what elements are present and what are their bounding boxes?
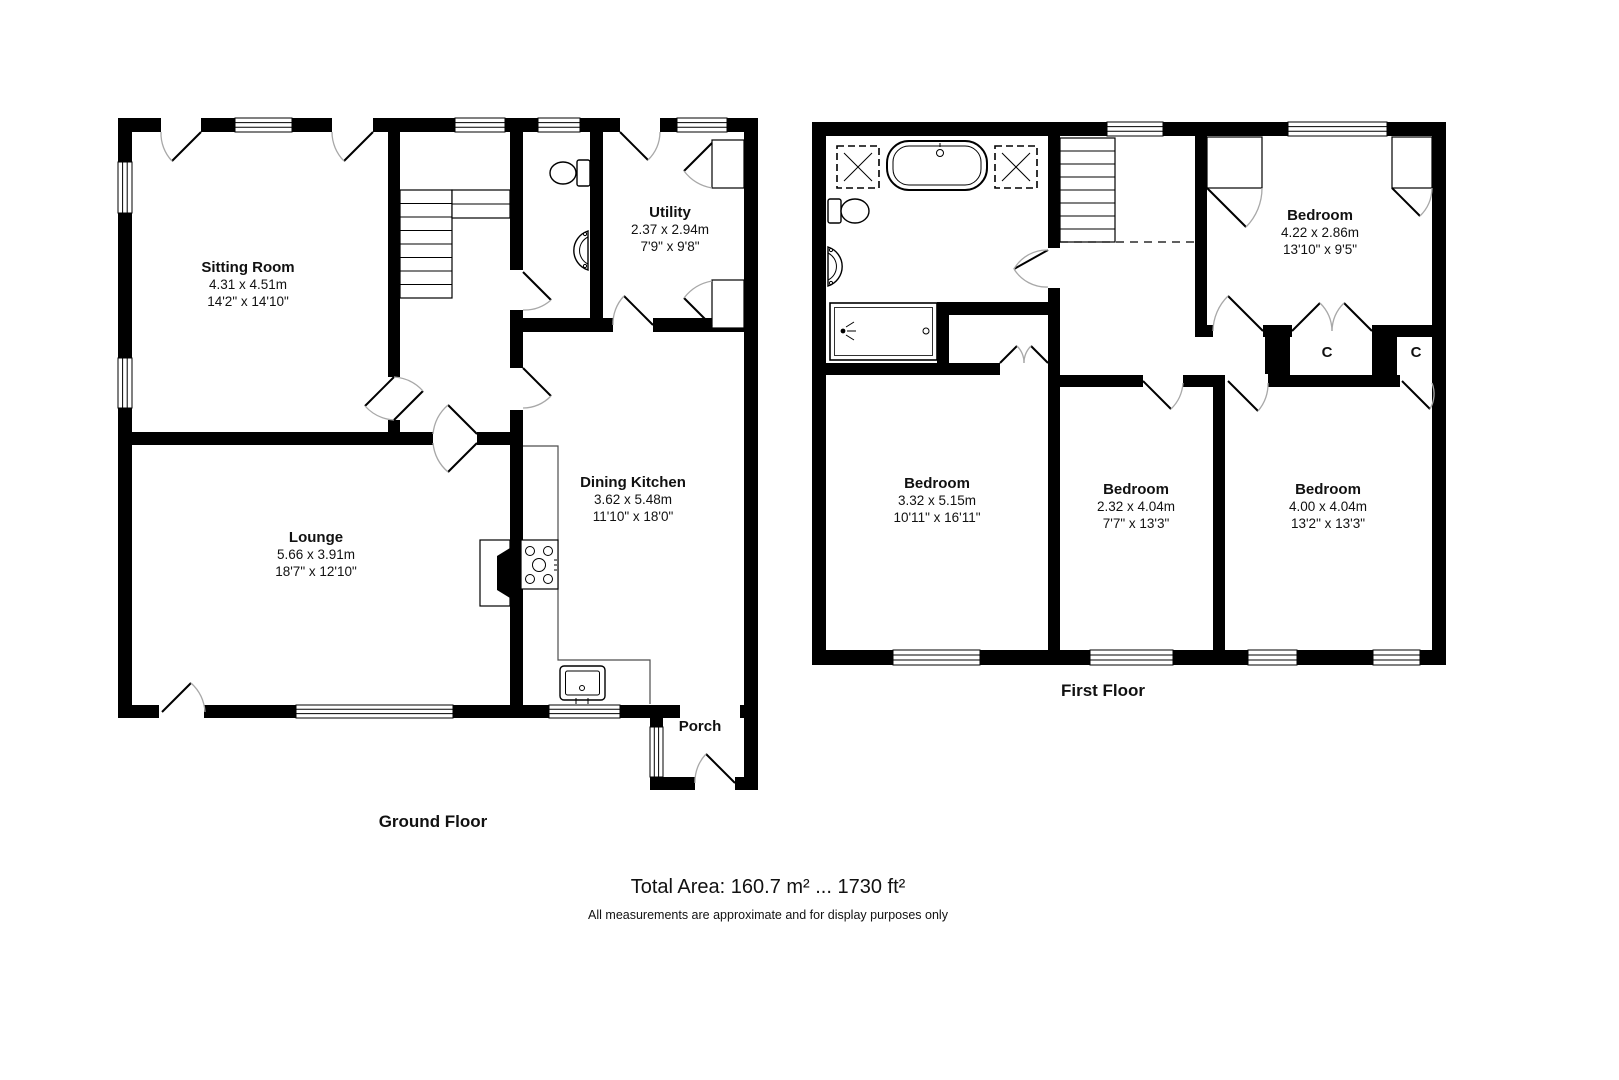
door-swing — [620, 132, 660, 160]
cupboard-icon — [684, 140, 744, 188]
bedroom-2-metric: 2.32 x 4.04m — [1097, 499, 1175, 514]
utility-imperial: 7'9" x 9'8" — [640, 239, 699, 254]
footer-text: Total Area: 160.7 m² ... 1730 ft² All me… — [588, 876, 949, 922]
utility-label: Utility — [649, 204, 691, 221]
shower-tray-icon — [837, 146, 879, 188]
window-icon — [1288, 122, 1387, 136]
window-icon — [1107, 122, 1163, 136]
ff-room-labels: Bedroom 4.22 x 2.86m 13'10" x 9'5" Bedro… — [893, 207, 1421, 700]
sink-icon — [828, 247, 842, 286]
bath-icon — [887, 141, 987, 190]
window-icon — [1373, 650, 1420, 665]
door-swing — [523, 272, 551, 310]
bedroom-tr-metric: 4.22 x 2.86m — [1281, 225, 1359, 240]
window-icon — [1090, 650, 1173, 665]
window-icon — [455, 118, 505, 132]
wardrobe-icon — [1207, 137, 1262, 227]
sitting-room-label: Sitting Room — [201, 259, 294, 276]
window-icon — [235, 118, 292, 132]
utility-metric: 2.37 x 2.94m — [631, 222, 709, 237]
window-icon — [118, 162, 132, 213]
window-icon — [650, 727, 663, 777]
ground-floor-plan: Sitting Room 4.31 x 4.51m 14'2" x 14'10"… — [118, 117, 758, 831]
door-swing — [1402, 381, 1434, 409]
window-icon — [118, 358, 132, 408]
bedroom-2-imperial: 7'7" x 13'3" — [1103, 516, 1170, 531]
gf-stairs-icon — [400, 190, 510, 298]
fireplace-icon — [480, 540, 510, 606]
ground-floor-title: Ground Floor — [379, 812, 488, 831]
bedroom-3-metric: 4.00 x 4.04m — [1289, 499, 1367, 514]
floorplan-page: Sitting Room 4.31 x 4.51m 14'2" x 14'10"… — [0, 0, 1619, 1080]
shower-enclosure-icon — [830, 303, 937, 360]
window-icon — [893, 650, 980, 665]
door-swing — [161, 132, 201, 161]
bedroom-1-label: Bedroom — [904, 475, 970, 492]
dining-kitchen-label: Dining Kitchen — [580, 474, 686, 491]
first-floor-plan: Bedroom 4.22 x 2.86m 13'10" x 9'5" Bedro… — [812, 122, 1446, 700]
sink-icon — [574, 231, 588, 270]
window-icon — [296, 705, 453, 718]
door-swing-double — [1000, 346, 1048, 363]
window-icon — [538, 118, 580, 132]
door-swing-double-action — [1014, 250, 1048, 287]
dining-kitchen-metric: 3.62 x 5.48m — [594, 492, 672, 507]
ff-stairs-icon — [1060, 138, 1195, 242]
dining-kitchen-imperial: 11'10" x 18'0" — [593, 509, 674, 524]
bedroom-tr-imperial: 13'10" x 9'5" — [1283, 242, 1357, 257]
hob-icon — [521, 540, 558, 589]
floorplan-svg: Sitting Room 4.31 x 4.51m 14'2" x 14'10"… — [0, 0, 1619, 1080]
ff-walls — [812, 122, 1446, 665]
shower-tray-icon — [995, 146, 1037, 188]
lounge-metric: 5.66 x 3.91m — [277, 547, 355, 562]
bedroom-3-label: Bedroom — [1295, 481, 1361, 498]
wardrobe-icon — [1392, 137, 1432, 216]
bedroom-2-label: Bedroom — [1103, 481, 1169, 498]
lounge-label: Lounge — [289, 529, 343, 546]
bedroom-3-imperial: 13'2" x 13'3" — [1291, 516, 1365, 531]
door-swing — [332, 132, 373, 161]
kitchen-sink-icon — [560, 666, 605, 704]
sitting-room-imperial: 14'2" x 14'10" — [207, 294, 289, 309]
closet-left-label: C — [1322, 344, 1333, 361]
toilet-icon — [828, 199, 869, 223]
lounge-imperial: 18'7" x 12'10" — [275, 564, 357, 579]
toilet-icon — [550, 160, 590, 186]
window-icon — [1248, 650, 1297, 665]
window-icon — [677, 118, 727, 132]
disclaimer-text: All measurements are approximate and for… — [588, 908, 949, 922]
gf-wc-fixtures — [550, 160, 590, 270]
bedroom-1-imperial: 10'11" x 16'11" — [893, 510, 980, 525]
closet-right-label: C — [1411, 344, 1422, 361]
gf-room-labels: Sitting Room 4.31 x 4.51m 14'2" x 14'10"… — [201, 204, 721, 831]
bedroom-1-metric: 3.32 x 5.15m — [898, 493, 976, 508]
ff-bathroom-fixtures — [828, 141, 1037, 360]
sitting-room-metric: 4.31 x 4.51m — [209, 277, 287, 292]
total-area-text: Total Area: 160.7 m² ... 1730 ft² — [631, 876, 906, 898]
window-icon — [549, 705, 620, 718]
bedroom-tr-label: Bedroom — [1287, 207, 1353, 224]
first-floor-title: First Floor — [1061, 681, 1145, 700]
porch-label: Porch — [679, 718, 722, 735]
door-swing — [523, 368, 551, 408]
